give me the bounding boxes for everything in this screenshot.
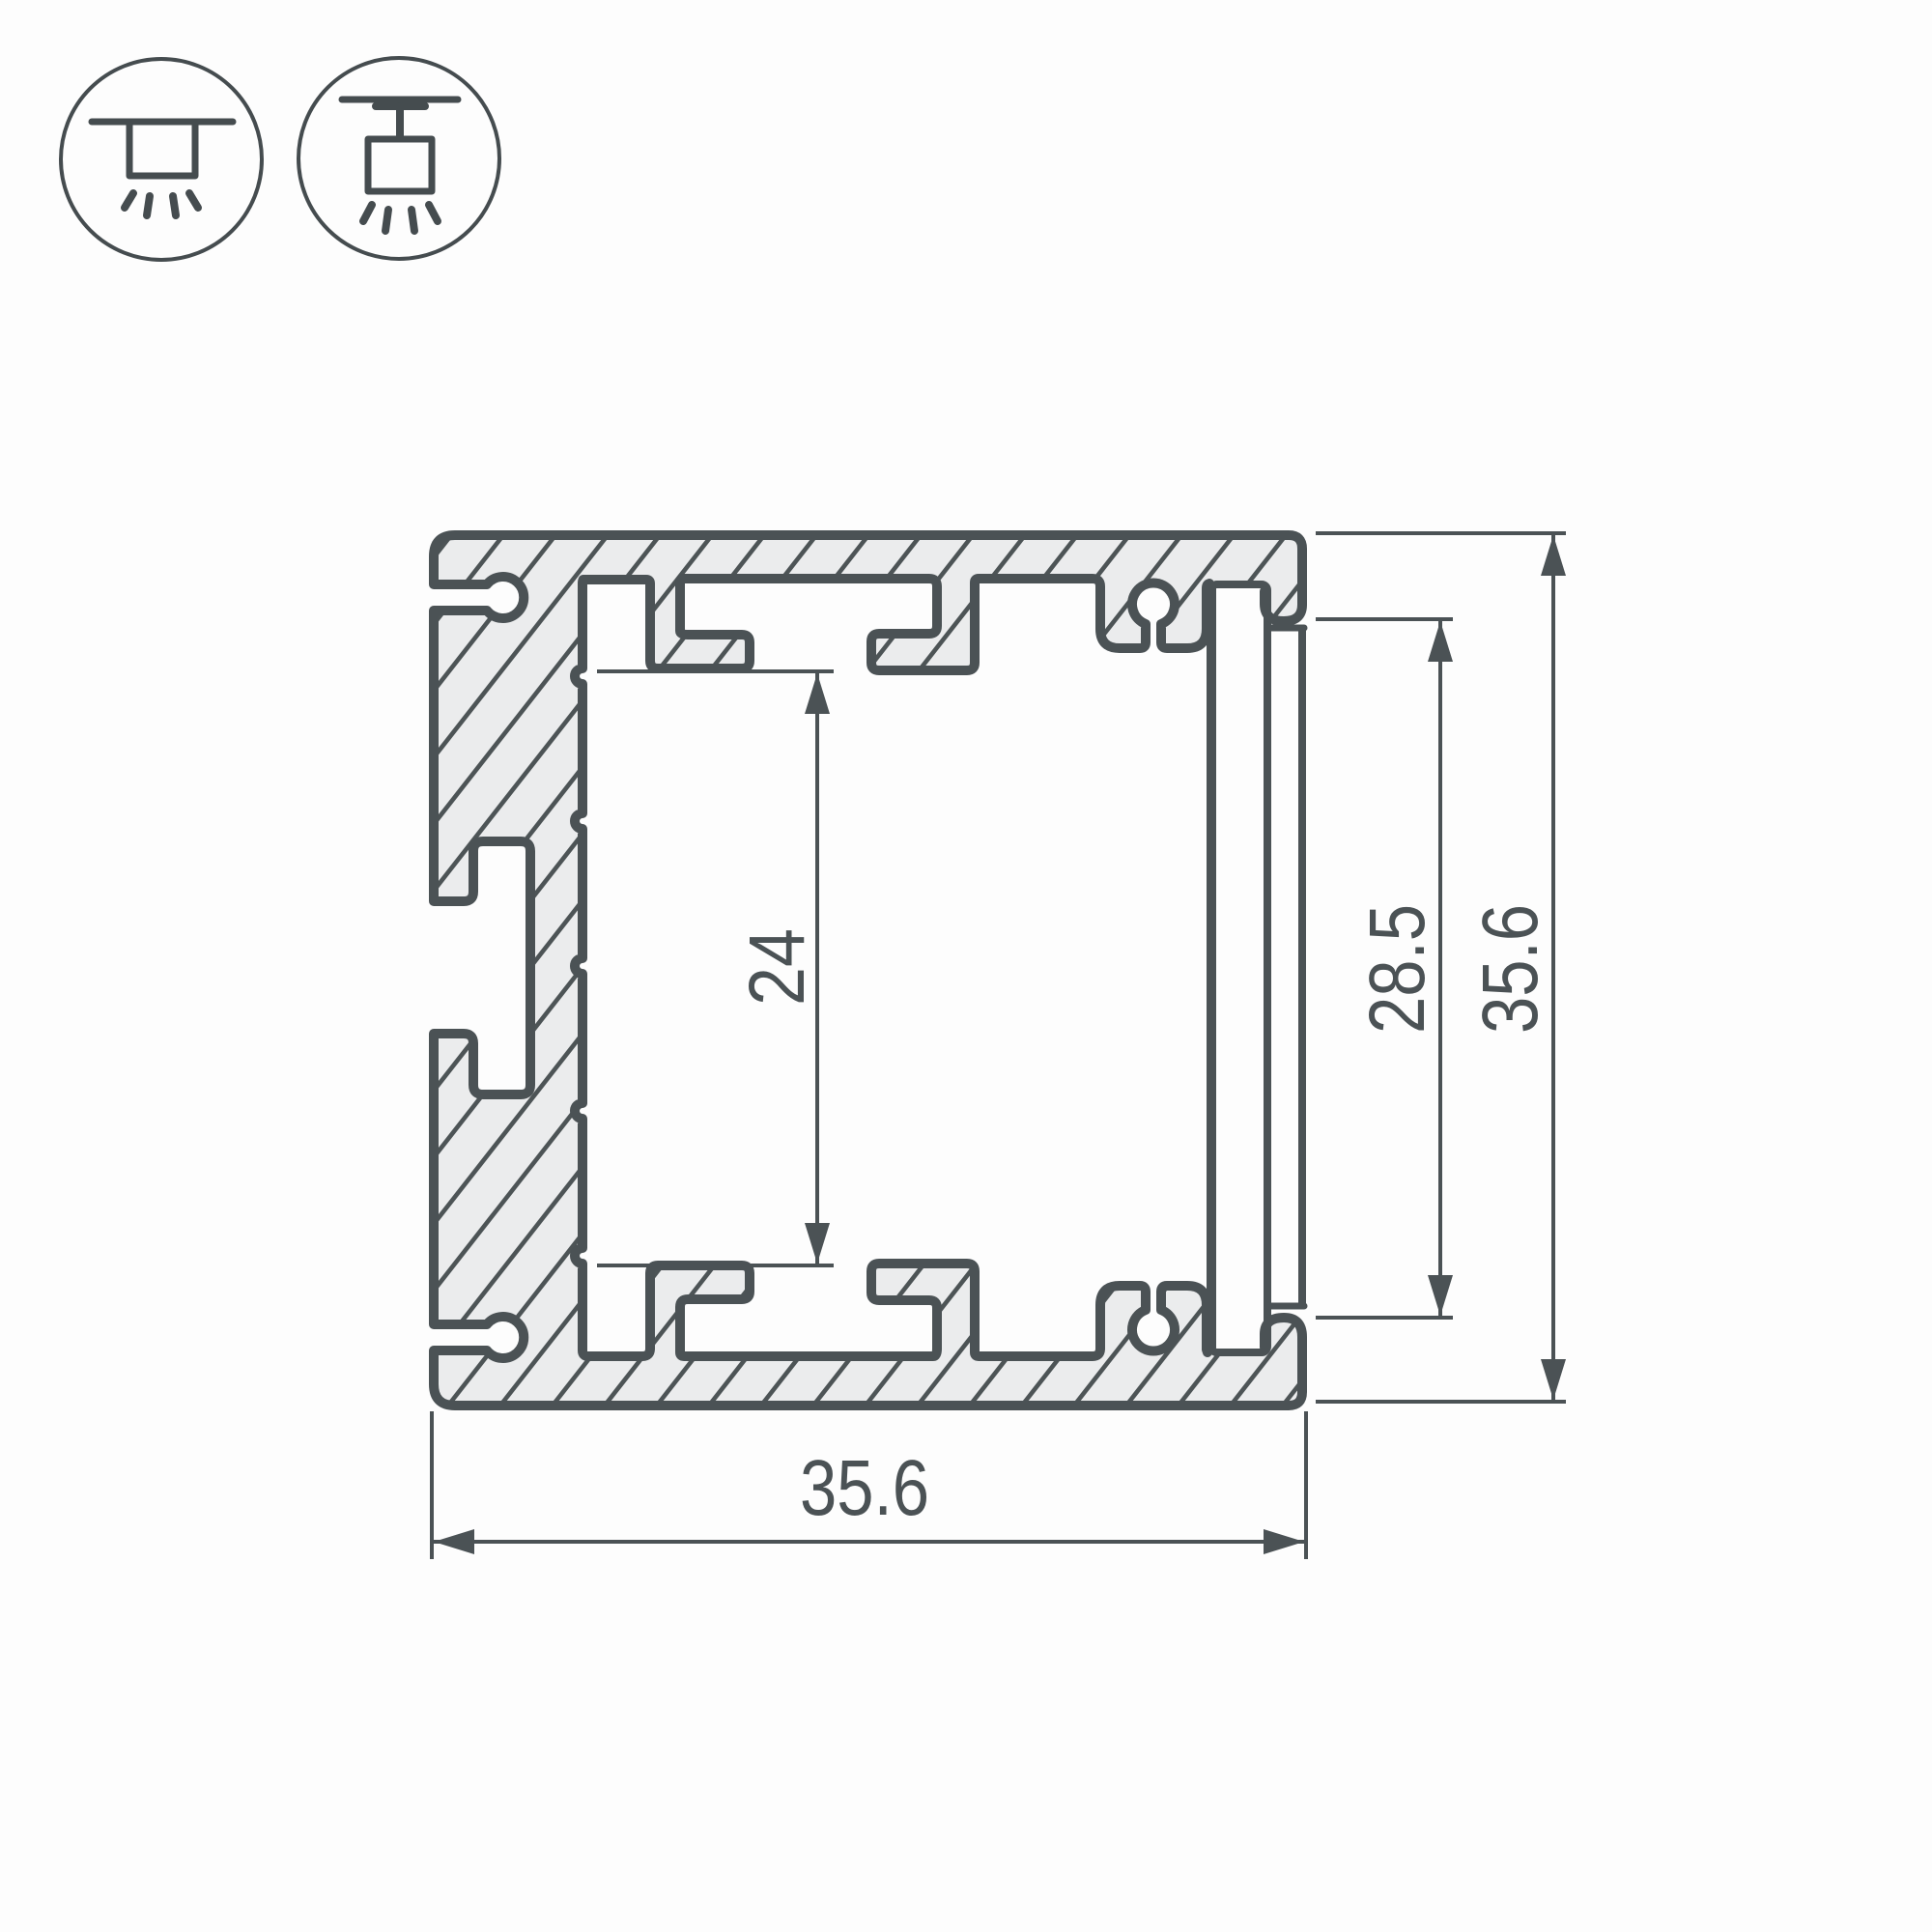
svg-text:35.6: 35.6 [800, 1444, 929, 1532]
svg-text:28.5: 28.5 [1353, 904, 1441, 1034]
svg-text:35.6: 35.6 [1466, 904, 1554, 1034]
svg-text:24: 24 [733, 928, 821, 1006]
